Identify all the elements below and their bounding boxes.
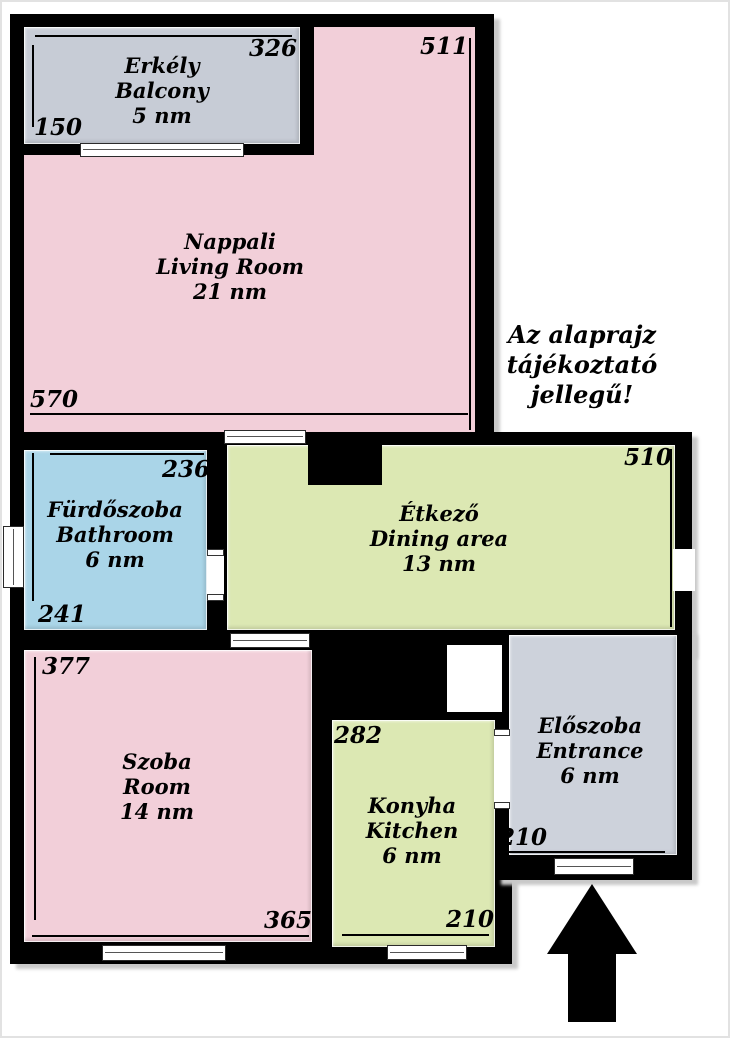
entrance-arrow-icon — [547, 884, 637, 954]
door-panel — [557, 866, 631, 867]
room-name-en: Dining area — [364, 527, 514, 552]
kitchen-window — [387, 945, 467, 960]
room-name-en: Room — [97, 775, 217, 800]
label-balcony: Erkély Balcony 5 nm — [82, 54, 242, 128]
dim-living-height: 511 — [420, 35, 466, 59]
window-glass — [13, 529, 14, 585]
window-glass — [105, 952, 223, 953]
dim-kitchen-width: 210 — [446, 908, 490, 932]
dim-bathroom-height: 241 — [38, 603, 98, 627]
dimline-kitchen-left — [330, 752, 332, 932]
room-name-hu: Konyha — [347, 794, 477, 819]
disclaimer-note: Az alaprajz tájékoztató jellegű! — [502, 320, 662, 411]
dimline-bathroom-top — [50, 453, 204, 455]
room-area: 13 nm — [364, 552, 514, 577]
room-area: 6 nm — [347, 844, 477, 869]
bathroom-window — [3, 526, 24, 588]
shaft — [447, 645, 502, 712]
bathroom-door — [207, 549, 224, 601]
window-glass — [233, 640, 307, 641]
szoba-window — [102, 945, 226, 961]
dim-szoba-width: 365 — [264, 909, 308, 933]
door-frame — [494, 802, 510, 809]
room-area: 6 nm — [42, 548, 188, 573]
room-area: 14 nm — [97, 800, 217, 825]
door-frame — [207, 549, 224, 556]
door-frame — [207, 594, 224, 601]
floor-plan: 326 150 511 570 236 241 510 377 365 282 … — [0, 0, 730, 1038]
dimline-kitchen-bottom — [342, 934, 489, 936]
dim-living-width: 570 — [30, 388, 90, 412]
dimline-szoba-bottom — [32, 935, 309, 937]
entrance-arrow-stem — [568, 952, 616, 1022]
label-living: Nappali Living Room 21 nm — [130, 230, 330, 304]
disclaimer-line: jellegű! — [502, 380, 662, 410]
kitchen-door — [494, 729, 510, 809]
dim-szoba-height: 377 — [42, 655, 102, 679]
room-name-en: Entrance — [520, 739, 660, 764]
room-area: 21 nm — [130, 280, 330, 305]
room-name-hu: Előszoba — [520, 714, 660, 739]
label-kitchen: Konyha Kitchen 6 nm — [347, 794, 477, 868]
dining-bottom-window — [230, 633, 310, 648]
label-szoba: Szoba Room 14 nm — [97, 750, 217, 824]
room-area: 6 nm — [520, 764, 660, 789]
dim-kitchen-height: 282 — [334, 724, 394, 748]
dimline-entrance-bottom — [502, 851, 665, 853]
dim-balcony-width: 326 — [237, 37, 297, 61]
room-name-en: Balcony — [82, 79, 242, 104]
room-name-hu: Étkező — [364, 502, 514, 527]
room-name-hu: Szoba — [97, 750, 217, 775]
dining-right-opening — [673, 549, 695, 591]
dimline-dining-right — [670, 449, 672, 627]
dim-dining-width: 510 — [624, 446, 668, 470]
dimline-szoba-left — [34, 657, 36, 920]
wall-notch-dining — [308, 445, 382, 485]
disclaimer-line: tájékoztató — [502, 350, 662, 380]
window-glass — [390, 952, 464, 953]
label-dining: Étkező Dining area 13 nm — [364, 502, 514, 576]
room-name-hu: Nappali — [130, 230, 330, 255]
door-frame — [494, 729, 510, 736]
window-glass — [83, 149, 241, 150]
label-bathroom: Fürdőszoba Bathroom 6 nm — [42, 498, 188, 572]
room-name-hu: Erkély — [82, 54, 242, 79]
dimline-living-bottom — [30, 413, 468, 415]
dim-bathroom-width: 236 — [162, 458, 208, 482]
balcony-window — [80, 143, 244, 157]
window-glass — [227, 436, 303, 437]
entrance-door — [554, 858, 634, 875]
room-area: 5 nm — [82, 104, 242, 129]
room-name-hu: Fürdőszoba — [42, 498, 188, 523]
dimline-bathroom-left — [32, 453, 34, 601]
room-name-en: Bathroom — [42, 523, 188, 548]
room-name-en: Kitchen — [347, 819, 477, 844]
disclaimer-line: Az alaprajz — [502, 320, 662, 350]
dimline-living-right — [469, 38, 471, 430]
dim-entrance-width: 210 — [499, 826, 543, 850]
label-entrance: Előszoba Entrance 6 nm — [520, 714, 660, 788]
room-name-en: Living Room — [130, 255, 330, 280]
dining-top-window — [224, 430, 306, 444]
